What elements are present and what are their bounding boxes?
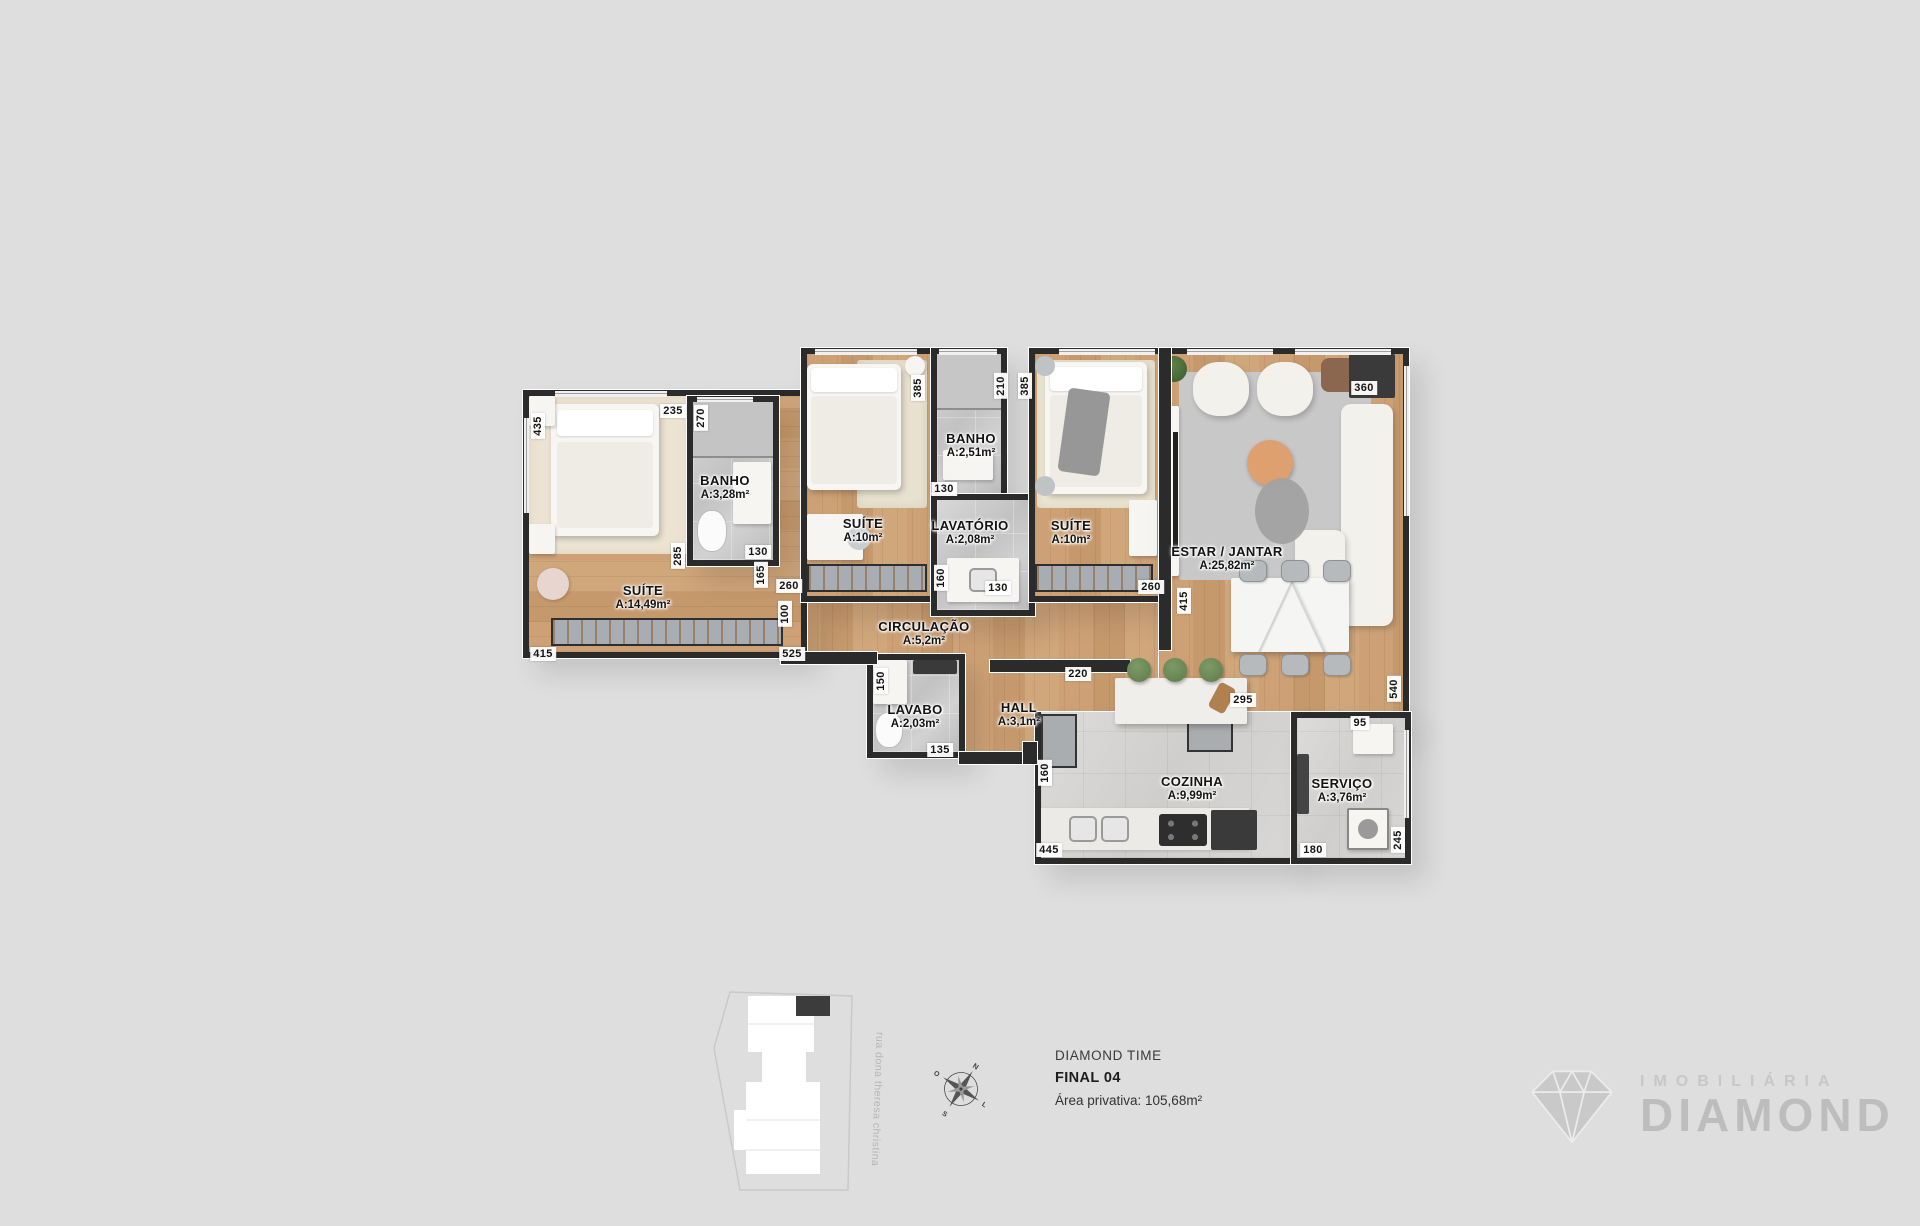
room-lavabo — [867, 654, 965, 758]
nightstand — [1035, 356, 1055, 376]
desk — [1129, 500, 1157, 556]
compass-rose: N L S O — [915, 1043, 1006, 1134]
tv — [1173, 432, 1178, 550]
bar-stool — [1163, 658, 1187, 682]
brand-text: IMOBILIÁRIA DIAMOND — [1640, 1073, 1895, 1139]
bathroom-vanity — [873, 660, 907, 704]
fireplace-unit — [1349, 354, 1395, 398]
compass-icon: N L S O — [915, 1043, 1006, 1134]
wall-segment — [1023, 742, 1037, 764]
dining-chair — [1239, 654, 1267, 676]
nightstand — [1035, 476, 1055, 496]
toilet — [875, 712, 903, 748]
diamond-icon — [1520, 1062, 1624, 1150]
private-area: Área privativa: 105,68m² — [1055, 1093, 1202, 1108]
nightstand — [529, 396, 555, 426]
window — [1295, 349, 1391, 355]
compass-north-label: N — [971, 1061, 980, 1071]
window — [555, 391, 667, 397]
site-plan-drawing — [700, 990, 875, 1195]
kitchen-cabinet — [1041, 714, 1077, 768]
wall-segment — [781, 652, 877, 664]
laundry-sink — [1353, 724, 1393, 754]
compass-east-label: L — [980, 1101, 987, 1109]
dining-chair — [1323, 560, 1351, 582]
window — [524, 418, 529, 513]
bar-stool — [1127, 658, 1151, 682]
side-stool — [905, 356, 925, 376]
wall-segment — [990, 660, 1130, 672]
wardrobe — [1035, 564, 1153, 592]
room-banho-master — [687, 396, 779, 566]
armchair — [1257, 362, 1313, 416]
floor-plan: SUÍTEA:14,49m² BANHOA:3,28m² SUÍTEA:10m²… — [515, 348, 1415, 872]
project-name: DIAMOND TIME — [1055, 1048, 1202, 1063]
washer-door — [1358, 819, 1378, 839]
brand-logo: IMOBILIÁRIA DIAMOND — [1520, 1062, 1915, 1150]
room-suite-2 — [801, 348, 937, 602]
window — [697, 397, 753, 402]
shower — [693, 402, 773, 458]
armchair — [537, 568, 569, 600]
dining-chair — [1323, 654, 1351, 676]
unit-number: FINAL 04 — [1055, 1070, 1202, 1086]
washer — [1347, 808, 1389, 850]
bed — [807, 364, 901, 490]
window — [1404, 366, 1409, 516]
bed-duvet — [811, 396, 897, 484]
kitchen-sink — [1101, 816, 1129, 842]
wardrobe — [807, 564, 927, 592]
room-suite-3 — [1029, 348, 1165, 602]
room-lavatorio — [931, 494, 1035, 616]
kitchen-sink — [1069, 816, 1097, 842]
sink-basin — [969, 568, 997, 592]
bed-pillows — [557, 410, 653, 436]
shelf — [1297, 754, 1309, 814]
room-cozinha — [1035, 712, 1297, 864]
brand-name: DIAMOND — [1640, 1091, 1895, 1139]
oven-cabinet — [1211, 810, 1257, 850]
armchair — [1193, 362, 1249, 416]
window — [1187, 349, 1273, 355]
highlighted-unit — [796, 996, 830, 1016]
room-banho-2 — [931, 348, 1007, 500]
compass-south-label: S — [941, 1110, 949, 1119]
shower — [937, 354, 1001, 410]
dining-chair — [1281, 560, 1309, 582]
dining-chair — [1281, 654, 1309, 676]
desk-chair — [847, 526, 871, 550]
bed — [1045, 362, 1147, 494]
bed-duvet — [557, 442, 653, 528]
wall-segment — [1159, 348, 1171, 650]
site-plan: rua dona theresa christina — [700, 990, 875, 1195]
cooktop — [1159, 814, 1207, 846]
nightstand — [529, 524, 555, 554]
room-estar-jantar — [1159, 348, 1409, 726]
window — [939, 349, 997, 355]
bed-pillows — [811, 368, 897, 392]
bed — [551, 404, 659, 536]
window — [1404, 730, 1409, 818]
page: { "colors": { "background": "#dfdede", "… — [0, 0, 1920, 1226]
toilet — [697, 510, 727, 552]
room-servico — [1291, 712, 1411, 864]
shelf — [913, 660, 957, 674]
unit-info: DIAMOND TIME FINAL 04 Área privativa: 10… — [1055, 1048, 1202, 1108]
bed-pillows — [1050, 367, 1142, 391]
window — [1059, 349, 1155, 355]
wardrobe — [551, 618, 783, 646]
bathroom-vanity — [943, 450, 993, 480]
dining-table — [1231, 578, 1349, 652]
window — [815, 349, 917, 355]
bathroom-vanity — [733, 462, 771, 524]
dining-chair — [1239, 560, 1267, 582]
bar-stool — [1199, 658, 1223, 682]
coffee-table-2 — [1255, 478, 1309, 544]
compass-west-label: O — [932, 1070, 941, 1079]
